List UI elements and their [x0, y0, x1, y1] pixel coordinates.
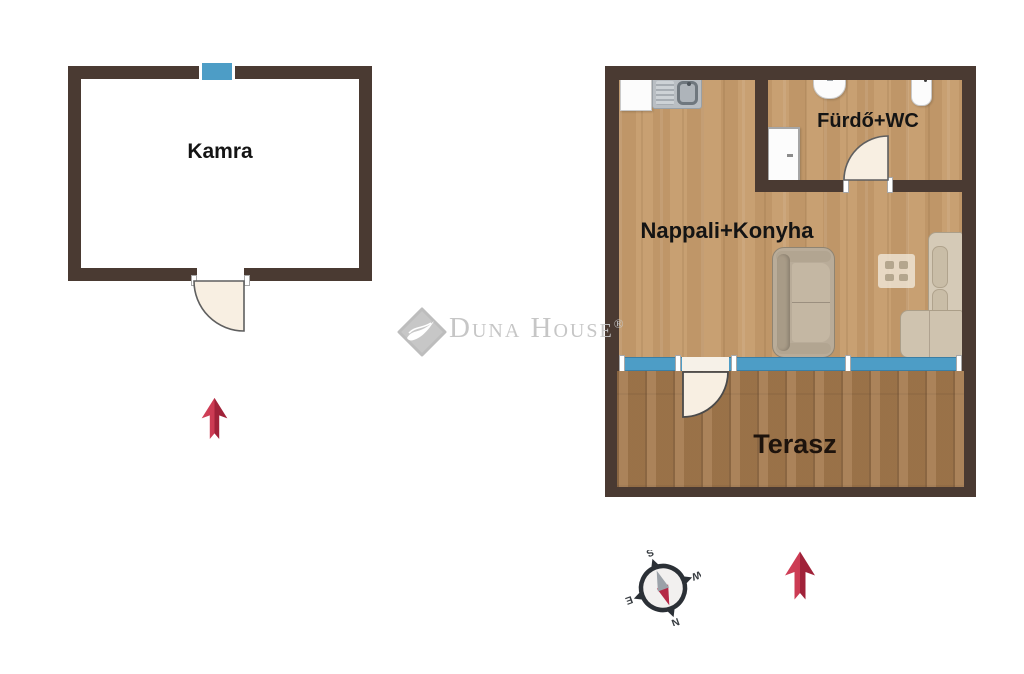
terrace-wall-right	[964, 371, 976, 497]
wall-top	[605, 66, 976, 80]
shower-tray	[767, 127, 800, 183]
compass-letter-s: S	[645, 550, 656, 559]
floor-plan-canvas: Kamra	[0, 0, 1024, 674]
shower-handle-icon	[787, 154, 793, 157]
sofa-pillow	[932, 246, 948, 288]
faucet-icon	[687, 82, 691, 86]
sofa	[772, 247, 835, 358]
bathroom-wall-horizontal-left	[768, 180, 848, 192]
compass-letter-e: E	[625, 593, 634, 607]
registered-mark: ®	[614, 316, 624, 331]
compass-letter-n: N	[670, 615, 681, 626]
watermark-brand-text: Duna House	[449, 312, 614, 344]
terrace-label: Terasz	[695, 430, 895, 458]
kamra-label: Kamra	[68, 141, 372, 163]
living-room-window	[619, 357, 962, 371]
terrace-wall-left	[605, 371, 617, 497]
kamra-window	[199, 63, 235, 80]
kitchen-counter	[620, 79, 652, 111]
kamra-room	[68, 66, 372, 281]
coffee-table	[878, 254, 915, 288]
terrace-door	[681, 370, 730, 419]
bathroom-wall-vertical	[755, 80, 768, 192]
direction-arrow-icon	[784, 550, 816, 607]
kamra-door	[192, 279, 246, 333]
sink-drainboard	[656, 81, 674, 105]
kitchen-sink	[652, 77, 702, 109]
sofa-cushions	[792, 263, 830, 342]
terrace-wall-bottom	[605, 487, 976, 497]
sofa-backrest	[777, 254, 790, 351]
duna-house-logo-icon	[397, 307, 447, 357]
terrace-door-frame	[682, 357, 729, 371]
direction-arrow-icon	[199, 397, 230, 445]
sink-basin	[677, 81, 698, 105]
bathroom-door	[843, 134, 891, 182]
bathroom-label: Fürdő+WC	[770, 111, 966, 132]
living-room-label: Nappali+Konyha	[607, 219, 847, 242]
bathroom-wall-horizontal-right	[888, 180, 962, 192]
corner-sofa-horizontal	[900, 310, 963, 358]
compass-icon: N E S W	[625, 550, 701, 626]
watermark-brand: Duna House®	[449, 312, 624, 345]
compass-letter-w: W	[690, 568, 701, 583]
